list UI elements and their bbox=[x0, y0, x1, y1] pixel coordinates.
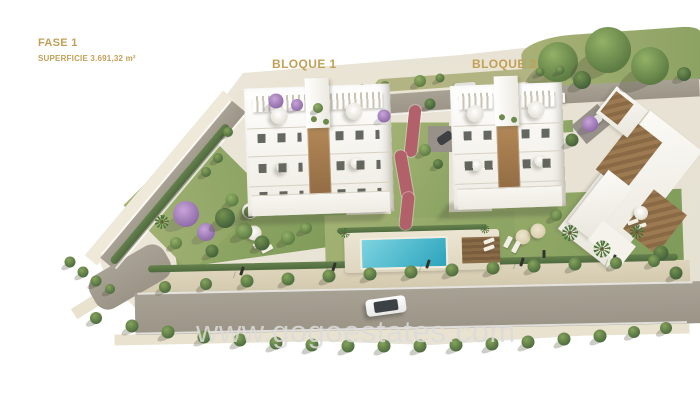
street-tree bbox=[323, 270, 336, 283]
palm-tree bbox=[340, 228, 350, 238]
parasol bbox=[531, 224, 546, 239]
bloque-2-label: BLOQUE 2 bbox=[472, 57, 537, 71]
tree bbox=[573, 71, 591, 89]
windows-row bbox=[463, 130, 493, 140]
tree bbox=[206, 245, 219, 258]
windows-row bbox=[465, 160, 495, 170]
street-tree bbox=[556, 66, 565, 75]
windows-row bbox=[521, 128, 551, 138]
street-tree bbox=[446, 264, 459, 277]
street-tree bbox=[364, 268, 377, 281]
street-tree bbox=[610, 257, 622, 269]
tree bbox=[433, 159, 443, 169]
tree bbox=[281, 231, 295, 245]
tree bbox=[414, 75, 426, 87]
street-tree bbox=[90, 312, 102, 324]
phase-label: FASE 1 bbox=[38, 37, 78, 49]
street-tree bbox=[528, 260, 541, 273]
street-tree bbox=[487, 262, 500, 275]
street-tree bbox=[241, 275, 254, 288]
tree bbox=[585, 27, 631, 73]
windows-row bbox=[336, 160, 380, 171]
building-bloque-2 bbox=[450, 82, 566, 210]
street-tree bbox=[660, 322, 672, 334]
street-tree bbox=[200, 278, 212, 290]
tree bbox=[419, 144, 431, 156]
street-tree bbox=[65, 257, 76, 268]
tree bbox=[631, 47, 669, 85]
palm-tree bbox=[155, 215, 169, 229]
street-tree bbox=[126, 320, 139, 333]
tree bbox=[226, 194, 239, 207]
tree bbox=[300, 222, 312, 234]
street-tree bbox=[558, 333, 571, 346]
garden-shower bbox=[543, 250, 546, 258]
street-tree bbox=[436, 74, 445, 83]
palm-tree bbox=[630, 225, 644, 239]
street-tree bbox=[536, 68, 545, 77]
ground-terrace bbox=[457, 185, 562, 210]
windows-row bbox=[258, 163, 302, 174]
street-tree bbox=[159, 281, 171, 293]
street-tree bbox=[282, 273, 295, 286]
street-tree bbox=[78, 267, 89, 278]
street-tree bbox=[201, 167, 211, 177]
windows-row bbox=[335, 130, 379, 141]
building-bloque-1 bbox=[244, 83, 394, 216]
watermark: www.gogoestates.com bbox=[196, 314, 516, 350]
street-tree bbox=[405, 266, 418, 279]
site-plan-render: FASE 1 SUPERFICIE 3.691,32 m² BLOQUE 1 B… bbox=[0, 0, 700, 400]
tree bbox=[255, 236, 270, 251]
street-tree bbox=[213, 153, 223, 163]
street-tree bbox=[522, 336, 535, 349]
street-tree bbox=[91, 276, 102, 287]
surface-area-label: SUPERFICIE 3.691,32 m² bbox=[38, 54, 136, 63]
bloque-1-label: BLOQUE 1 bbox=[272, 57, 337, 71]
street-tree bbox=[594, 330, 607, 343]
palm-tree bbox=[594, 241, 611, 258]
street-tree bbox=[648, 255, 660, 267]
street-tree bbox=[162, 326, 175, 339]
street-tree bbox=[628, 326, 640, 338]
windows-row bbox=[522, 158, 552, 168]
tree bbox=[170, 237, 182, 249]
jacaranda-tree bbox=[173, 201, 199, 227]
street-tree bbox=[223, 127, 233, 137]
street-tree bbox=[105, 284, 115, 294]
tree bbox=[670, 267, 683, 280]
tree bbox=[677, 67, 691, 81]
street-tree bbox=[569, 258, 582, 271]
palm-tree bbox=[562, 225, 578, 241]
palm-tree bbox=[481, 225, 490, 234]
windows-row bbox=[257, 133, 301, 144]
